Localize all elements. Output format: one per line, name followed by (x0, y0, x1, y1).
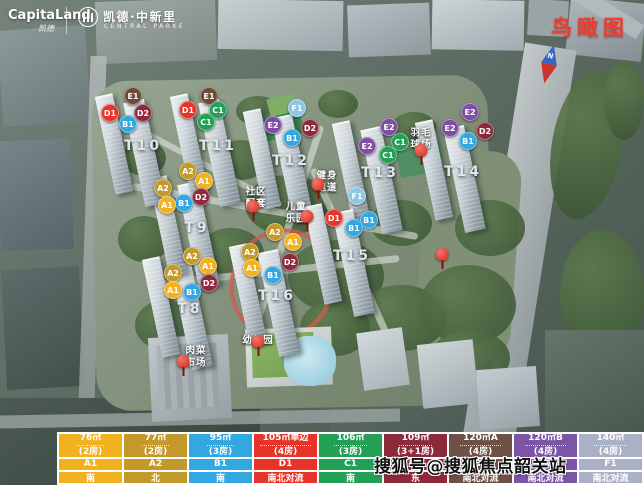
legend-column-A1: 76㎡(2房)A1南 (59, 434, 122, 483)
legend-rooms: (2房) (79, 446, 103, 457)
legend-type-cell: C1 (319, 459, 382, 470)
map-pin (436, 248, 449, 270)
legend-area-cell: 76㎡(2房) (59, 434, 122, 457)
legend-area-cell: 106㎡(3房) (319, 434, 382, 457)
legend-column-D1: 105㎡单边(4房)D1南北对流 (254, 434, 317, 483)
legend-area-cell: 105㎡单边(4房) (254, 434, 317, 457)
project-logo-icon (78, 7, 98, 27)
legend-rooms: (3房) (209, 446, 233, 457)
legend-area: 76㎡ (77, 434, 105, 446)
legend-area: 120㎡B (525, 434, 566, 446)
legend-type-cell: D1 (254, 459, 317, 470)
map-pin (301, 210, 314, 232)
legend-area: 109㎡ (399, 434, 433, 446)
project-subtitle: CENTRAL PARKE (104, 23, 185, 30)
legend-area: 105㎡单边 (260, 434, 312, 446)
watermark: 搜狐号@搜狐焦点韶关站 (374, 452, 567, 477)
legend-rooms: (2房) (144, 446, 168, 457)
birdseye-map: T8T9T10T11T12T13T14T15T16 社区配套儿童乐园健身跑道羽毛… (0, 0, 644, 485)
capitaland-script: 凯德 (38, 23, 54, 34)
legend-column-A2: 77㎡(2房)A2北 (124, 434, 187, 483)
map-pin (247, 200, 260, 222)
map-pin (177, 355, 190, 377)
legend-type-cell: B1 (189, 459, 252, 470)
logo-divider (66, 7, 67, 34)
map-pin (252, 335, 265, 357)
legend-column-C1: 106㎡(3房)C1南 (319, 434, 382, 483)
map-pin (415, 144, 428, 166)
legend-type-cell: F1 (579, 459, 642, 470)
map-pin (312, 178, 325, 200)
legend-orientation-cell: 南 (189, 472, 252, 483)
legend-type-cell: A1 (59, 459, 122, 470)
legend-orientation-cell: 北 (124, 472, 187, 483)
legend-column-F1: 140㎡(4房)F1南北对流 (579, 434, 642, 483)
legend-area-cell: 77㎡(2房) (124, 434, 187, 457)
legend-orientation-cell: 南北对流 (579, 472, 642, 483)
legend-orientation-cell: 南 (319, 472, 382, 483)
legend-area: 95㎡ (207, 434, 235, 446)
legend-area-cell: 95㎡(3房) (189, 434, 252, 457)
view-title: 鸟瞰图 (551, 12, 629, 42)
legend-area: 106㎡ (334, 434, 368, 446)
legend-area-cell: 140㎡(4房) (579, 434, 642, 457)
legend-column-B1: 95㎡(3房)B1南 (189, 434, 252, 483)
legend-rooms: (4房) (274, 446, 298, 457)
legend-type-cell: A2 (124, 459, 187, 470)
header-logos: CapitaLand 凯德 凯德·中新里 CENTRAL PARKE (0, 0, 300, 40)
legend-area: 77㎡ (142, 434, 170, 446)
legend-area: 120㎡A (460, 434, 501, 446)
legend-rooms: (3房) (339, 446, 363, 457)
legend-orientation-cell: 南 (59, 472, 122, 483)
legend-area: 140㎡ (594, 434, 628, 446)
legend-orientation-cell: 南北对流 (254, 472, 317, 483)
legend-rooms: (4房) (599, 446, 623, 457)
